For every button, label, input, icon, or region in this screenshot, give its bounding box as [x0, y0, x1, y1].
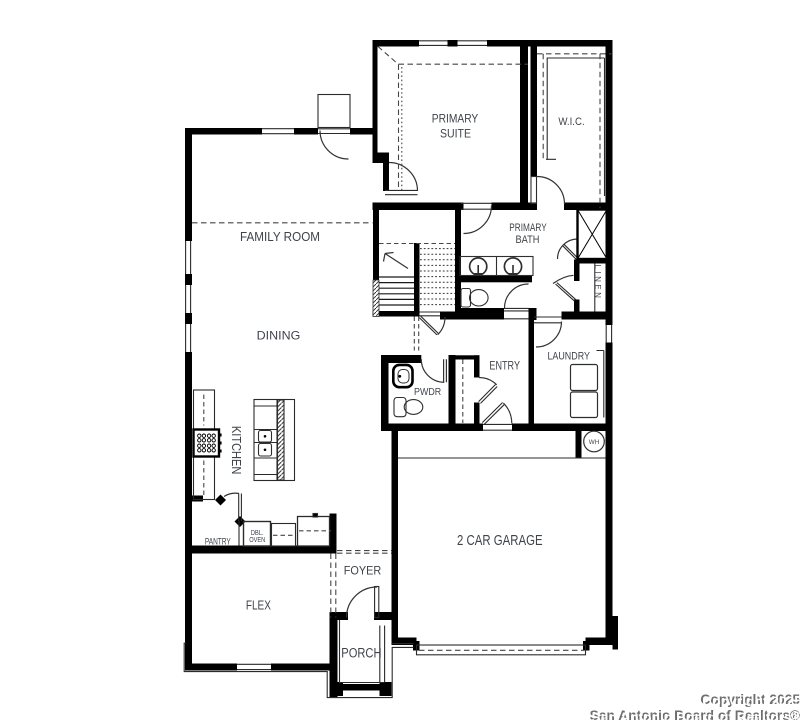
svg-text:PWDR: PWDR	[414, 387, 441, 398]
svg-text:FOYER: FOYER	[344, 563, 382, 577]
svg-text:KITCHEN: KITCHEN	[229, 426, 243, 474]
svg-text:W.I.C.: W.I.C.	[558, 116, 584, 128]
svg-text:LAUNDRY: LAUNDRY	[547, 350, 590, 362]
svg-text:OVEN: OVEN	[249, 535, 265, 544]
svg-text:DINING: DINING	[257, 329, 301, 343]
svg-text:PORCH: PORCH	[341, 646, 381, 661]
svg-text:SUITE: SUITE	[440, 127, 471, 141]
svg-text:ENTRY: ENTRY	[489, 358, 520, 372]
svg-text:FLEX: FLEX	[246, 598, 272, 612]
svg-text:PRIMARY: PRIMARY	[432, 112, 479, 126]
svg-text:PRIMARY: PRIMARY	[509, 222, 546, 234]
svg-text:PANTRY: PANTRY	[205, 537, 231, 548]
svg-text:WH: WH	[589, 439, 600, 446]
svg-text:BATH: BATH	[516, 234, 540, 246]
svg-text:2 CAR GARAGE: 2 CAR GARAGE	[457, 533, 543, 549]
svg-text:LINEN: LINEN	[593, 265, 602, 301]
svg-text:FAMILY ROOM: FAMILY ROOM	[240, 229, 320, 244]
